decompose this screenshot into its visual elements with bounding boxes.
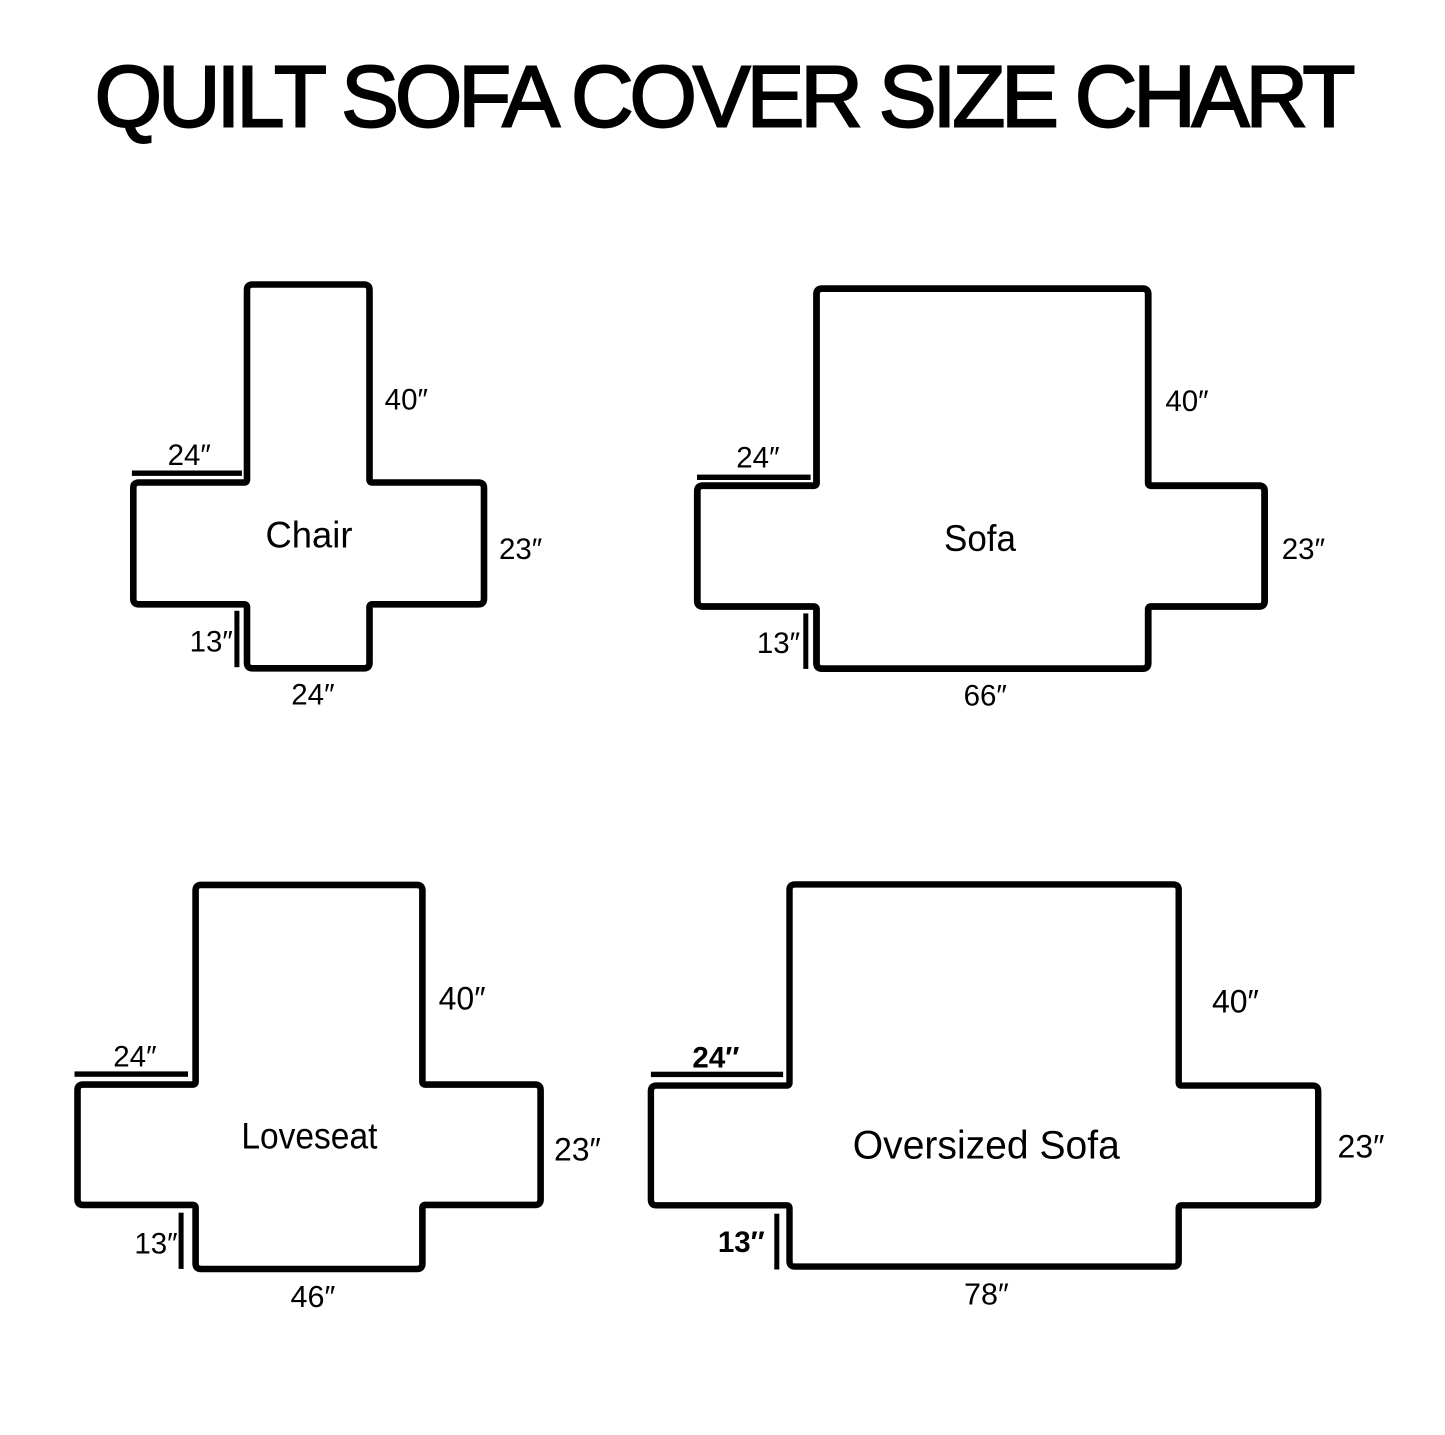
svg-text:QUILT SOFA COVER SIZE CHART: QUILT SOFA COVER SIZE CHART (95, 49, 1356, 146)
svg-text:Chair: Chair (266, 514, 353, 556)
svg-text:24″: 24″ (291, 679, 334, 712)
svg-text:24″: 24″ (168, 439, 211, 472)
svg-text:13″: 13″ (134, 1227, 177, 1260)
svg-text:23″: 23″ (499, 533, 542, 566)
svg-text:Oversized Sofa: Oversized Sofa (853, 1124, 1120, 1168)
svg-text:40″: 40″ (439, 981, 486, 1017)
svg-text:78″: 78″ (964, 1278, 1009, 1312)
svg-text:66″: 66″ (964, 679, 1007, 712)
svg-text:40″: 40″ (385, 384, 428, 417)
svg-text:13″: 13″ (190, 625, 233, 658)
svg-text:23″: 23″ (1338, 1128, 1385, 1164)
svg-text:24″: 24″ (113, 1041, 156, 1074)
svg-text:40″: 40″ (1165, 385, 1208, 418)
svg-text:Sofa: Sofa (944, 517, 1016, 559)
svg-text:13″: 13″ (718, 1226, 765, 1259)
svg-text:46″: 46″ (291, 1280, 336, 1314)
svg-text:40″: 40″ (1212, 984, 1259, 1020)
svg-text:23″: 23″ (554, 1131, 601, 1167)
svg-text:24″: 24″ (736, 442, 779, 475)
svg-text:Loveseat: Loveseat (241, 1115, 378, 1157)
svg-text:24″: 24″ (692, 1041, 739, 1074)
svg-text:13″: 13″ (757, 627, 800, 660)
svg-text:23″: 23″ (1282, 533, 1325, 566)
